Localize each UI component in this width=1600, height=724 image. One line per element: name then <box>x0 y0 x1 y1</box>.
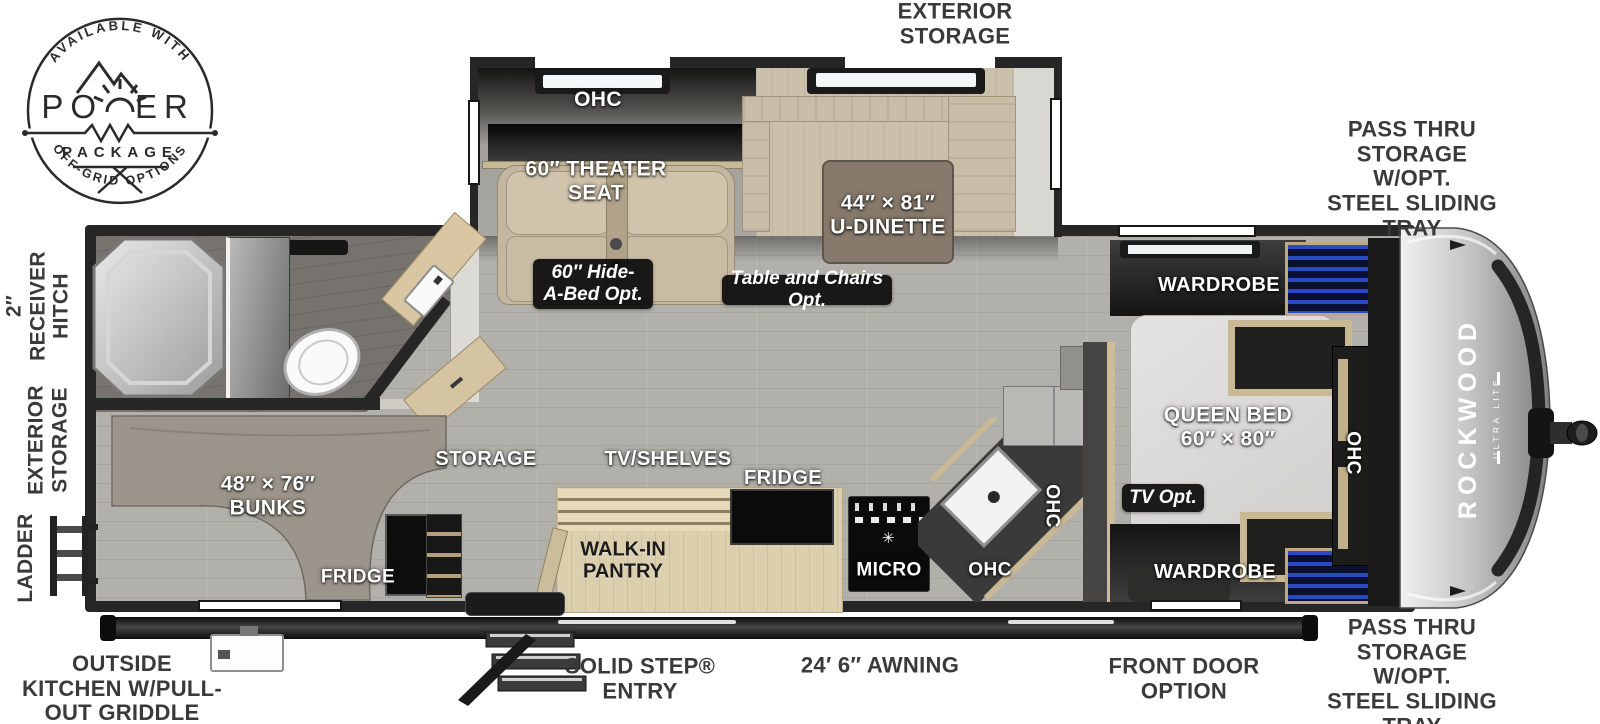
cupholder-icon <box>610 238 622 250</box>
bedroom-window <box>1120 241 1260 258</box>
brand-name: ROCKWOOD <box>1454 317 1482 519</box>
slide-left-window <box>468 100 480 185</box>
awning-highlight <box>558 620 736 624</box>
badge-title-right: ER <box>135 88 195 125</box>
awning-label: 24′ 6″ AWNING <box>801 654 959 679</box>
theater-window <box>535 70 670 94</box>
burner-icon: ✳ <box>882 529 895 547</box>
ladder-label: LADDER <box>14 513 38 602</box>
rv-floorplan: AVAILABLE WITH PO ER PACKAGE OFF-GRID OP… <box>0 0 1600 724</box>
slide-ohc-cabinet <box>488 124 750 162</box>
badge-subtitle: PACKAGE <box>62 144 178 161</box>
pass-thru-bottom-label: PASS THRU STORAGE W/OPT. STEEL SLIDING T… <box>1318 615 1506 724</box>
pantry-shelves <box>558 489 730 531</box>
shower-door <box>226 237 290 399</box>
outside-kitchen-module <box>210 634 284 672</box>
brand-sub: ULTRA LITE <box>1491 377 1501 459</box>
bunkroom-window <box>198 600 342 611</box>
faucet-icon <box>985 489 1002 506</box>
front-door-threshold <box>1150 600 1242 611</box>
power-package-badge: AVAILABLE WITH PO ER PACKAGE OFF-GRID OP… <box>15 5 225 215</box>
slideout-end-cabinet <box>1014 68 1054 237</box>
outside-kitchen-stem <box>240 626 258 636</box>
awning-end-cap <box>100 615 116 641</box>
badge-title-left: PO <box>41 88 103 125</box>
outside-kitchen-label: OUTSIDE KITCHEN W/PULL- OUT GRIDDLE <box>22 652 222 724</box>
awning-highlight <box>1008 620 1114 624</box>
theater-backrest-left <box>506 171 612 235</box>
bedroom-divider-wall <box>1083 342 1109 602</box>
awning-end-cap <box>1302 615 1318 641</box>
hitch-jack <box>1526 396 1600 470</box>
range-grate <box>855 517 925 523</box>
badge-top-text: AVAILABLE WITH <box>46 18 195 65</box>
dinette-window <box>807 68 985 94</box>
front-door-label: FRONT DOOR OPTION <box>1109 654 1260 703</box>
table-chairs-option-badge: Table and Chairs Opt. <box>722 275 892 305</box>
slide-window-gap-left <box>535 57 670 68</box>
door-mat <box>1128 572 1230 602</box>
dinette-table <box>822 160 954 264</box>
entry-steps <box>450 630 590 706</box>
exterior-storage-left-label: EXTERIOR STORAGE <box>24 385 71 495</box>
exterior-storage-top-label: EXTERIOR STORAGE <box>898 0 1013 49</box>
slide-window-gap-right <box>845 57 995 68</box>
range-knobs <box>855 503 925 511</box>
faucet-icon <box>433 275 443 285</box>
tv-option-badge: TV Opt. <box>1122 484 1204 512</box>
rear-ladder <box>44 512 98 604</box>
bedroom-top-exterior-window <box>1118 225 1256 237</box>
hide-a-bed-option-badge: 60″ Hide- A-Bed Opt. <box>533 259 653 309</box>
bunk-fridge <box>385 514 428 596</box>
receiver-hitch-label: 2″ RECEIVER HITCH <box>3 251 74 361</box>
storage-shelves <box>426 514 462 598</box>
entry-platform <box>465 592 565 616</box>
shower <box>92 237 226 398</box>
slide-right-window <box>1050 98 1062 190</box>
dinette-bench-right <box>948 96 1016 232</box>
galley-fridge <box>730 489 834 545</box>
theater-backrest-right <box>622 171 728 235</box>
